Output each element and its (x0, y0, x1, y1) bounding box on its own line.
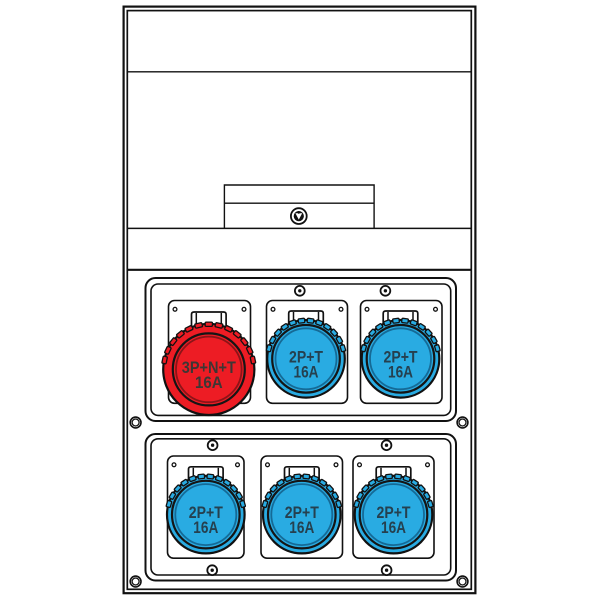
svg-text:16A: 16A (193, 518, 218, 537)
svg-text:16A: 16A (195, 373, 223, 392)
svg-text:16A: 16A (294, 362, 319, 381)
svg-text:16A: 16A (289, 518, 314, 537)
svg-text:16A: 16A (388, 362, 413, 381)
svg-text:16A: 16A (381, 518, 406, 537)
